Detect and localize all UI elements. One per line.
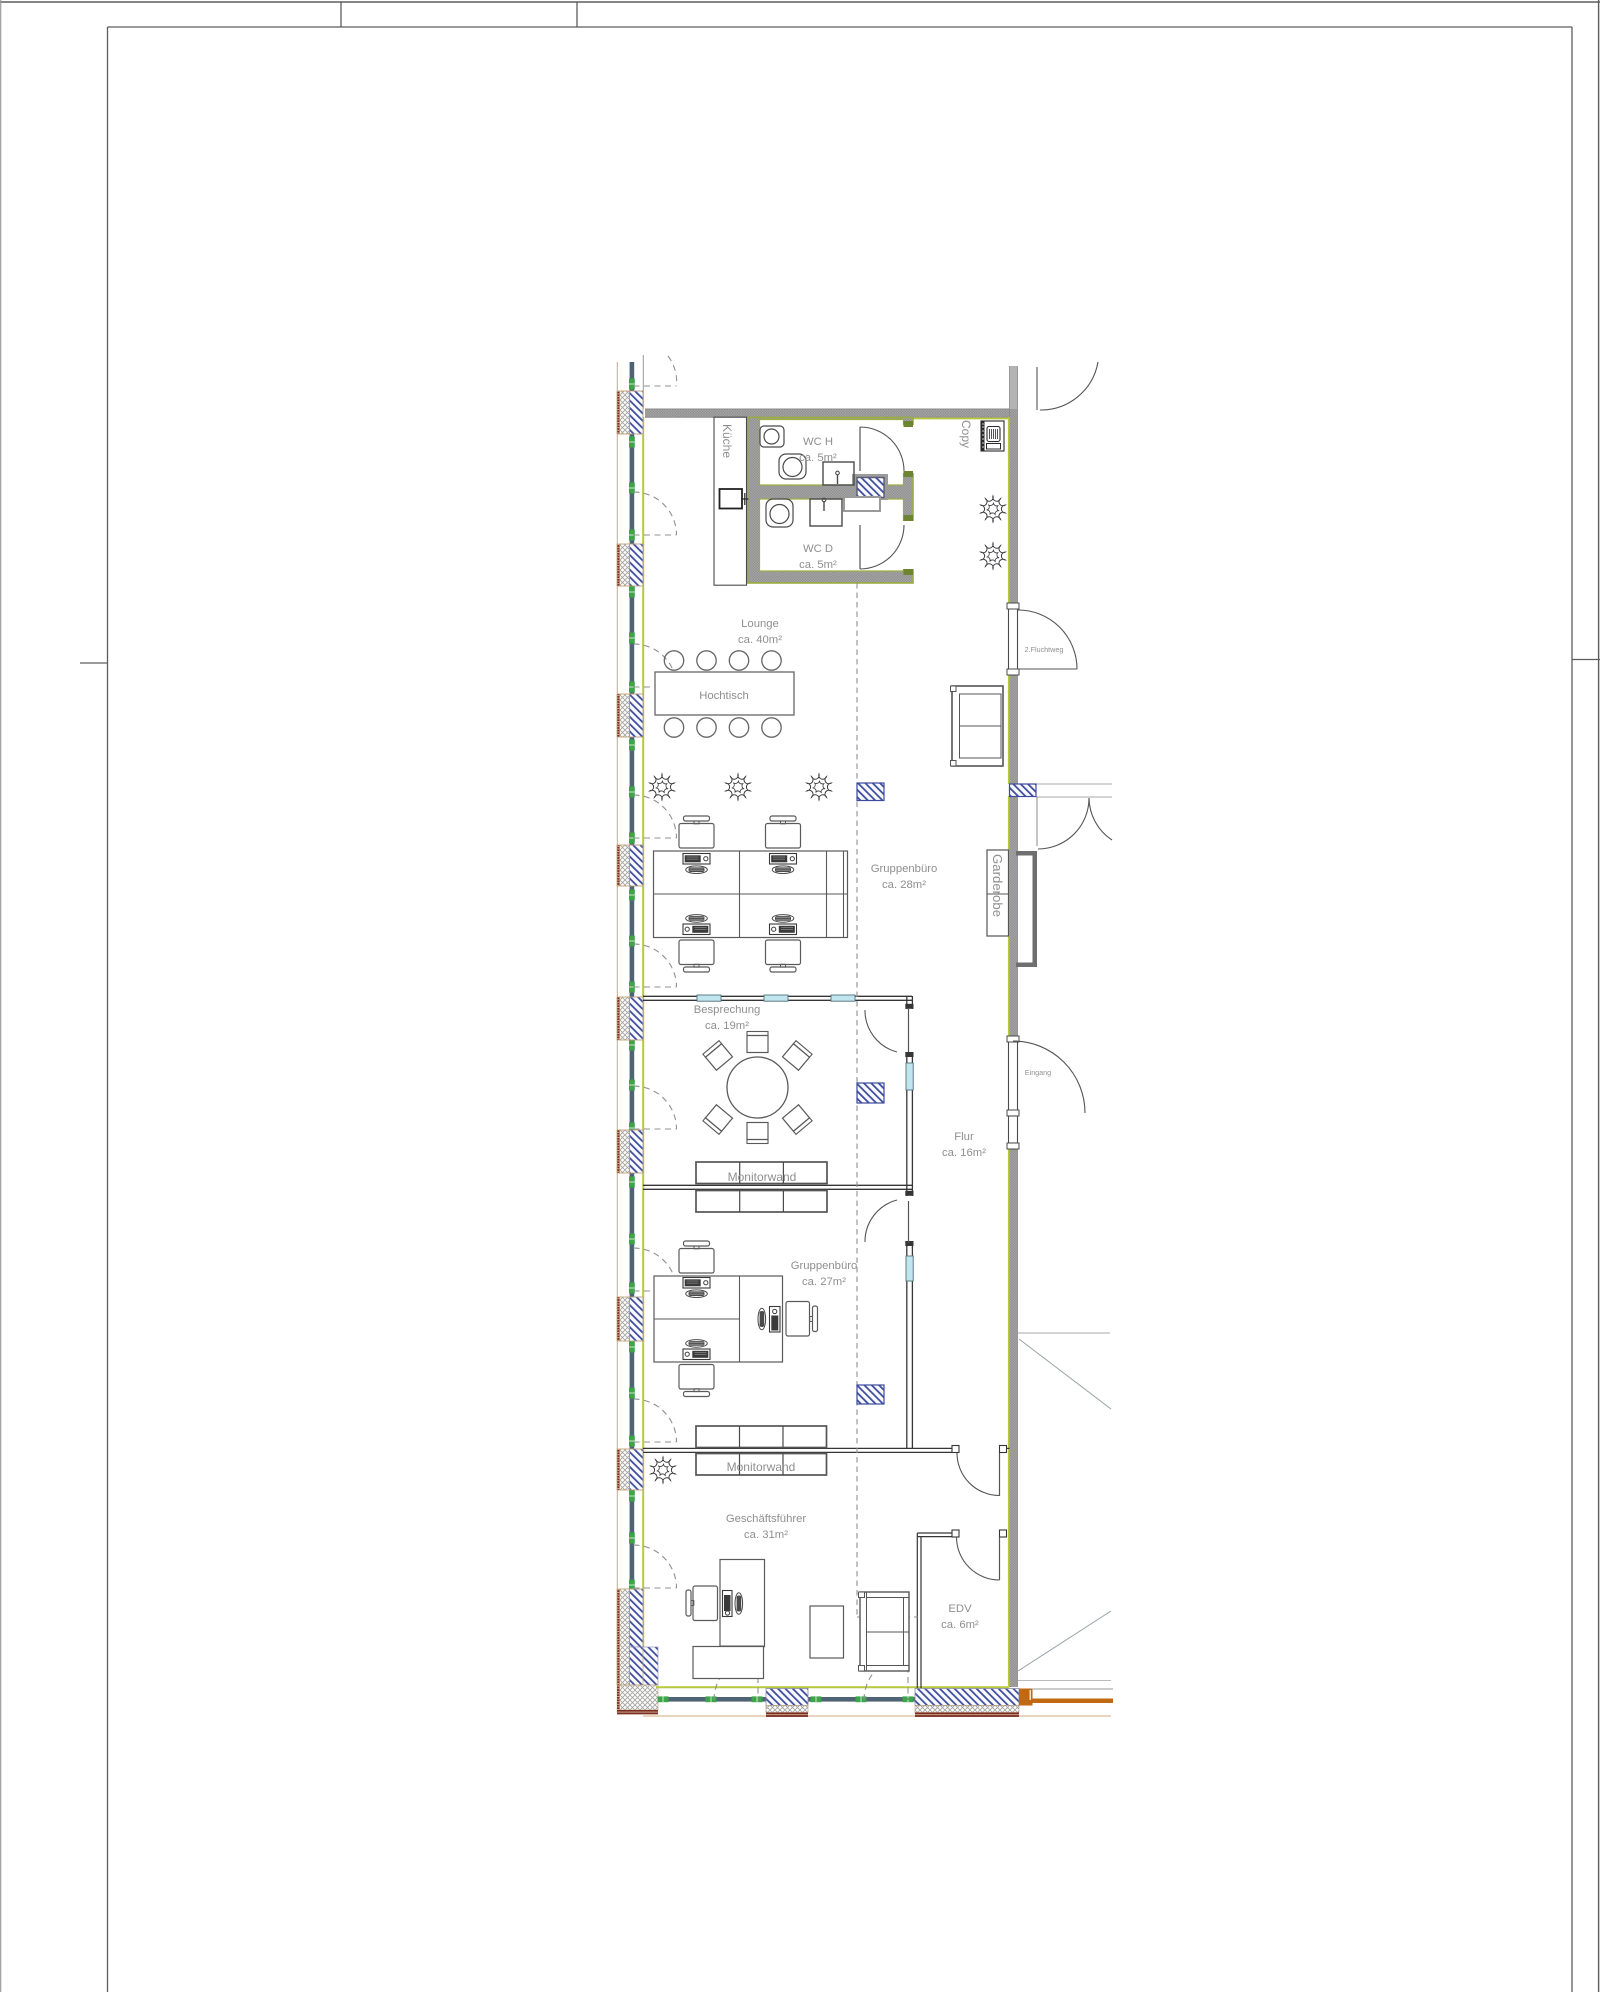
svg-text:EDV: EDV — [948, 1603, 972, 1615]
svg-text:Garderobe: Garderobe — [990, 854, 1005, 917]
svg-text:Monitorwand: Monitorwand — [728, 1170, 797, 1184]
svg-text:ca. 5m²: ca. 5m² — [799, 559, 837, 571]
svg-text:Hochtisch: Hochtisch — [699, 690, 749, 702]
svg-text:Copy: Copy — [959, 420, 973, 448]
svg-text:Besprechung: Besprechung — [694, 1004, 761, 1016]
svg-text:Küche: Küche — [720, 424, 734, 458]
svg-text:ca. 40m²: ca. 40m² — [738, 634, 782, 646]
svg-text:WC H: WC H — [803, 436, 833, 448]
svg-text:Geschäftsführer: Geschäftsführer — [726, 1513, 807, 1525]
svg-text:ca. 6m²: ca. 6m² — [941, 1619, 979, 1631]
svg-text:WC D: WC D — [803, 543, 833, 555]
svg-text:ca. 27m²: ca. 27m² — [802, 1276, 846, 1288]
svg-text:Lounge: Lounge — [741, 618, 779, 630]
svg-text:Gruppenbüro: Gruppenbüro — [791, 1260, 858, 1272]
svg-text:ca. 28m²: ca. 28m² — [882, 879, 926, 891]
svg-text:Monitorwand: Monitorwand — [727, 1460, 796, 1474]
svg-text:2.Fluchtweg: 2.Fluchtweg — [1025, 645, 1064, 654]
svg-text:ca. 19m²: ca. 19m² — [705, 1020, 749, 1032]
svg-text:Eingang: Eingang — [1025, 1068, 1051, 1077]
svg-text:ca. 5m²: ca. 5m² — [799, 452, 837, 464]
svg-text:ca. 16m²: ca. 16m² — [942, 1147, 986, 1159]
svg-text:Gruppenbüro: Gruppenbüro — [871, 863, 938, 875]
svg-text:ca. 31m²: ca. 31m² — [744, 1529, 788, 1541]
svg-text:Flur: Flur — [954, 1131, 974, 1143]
